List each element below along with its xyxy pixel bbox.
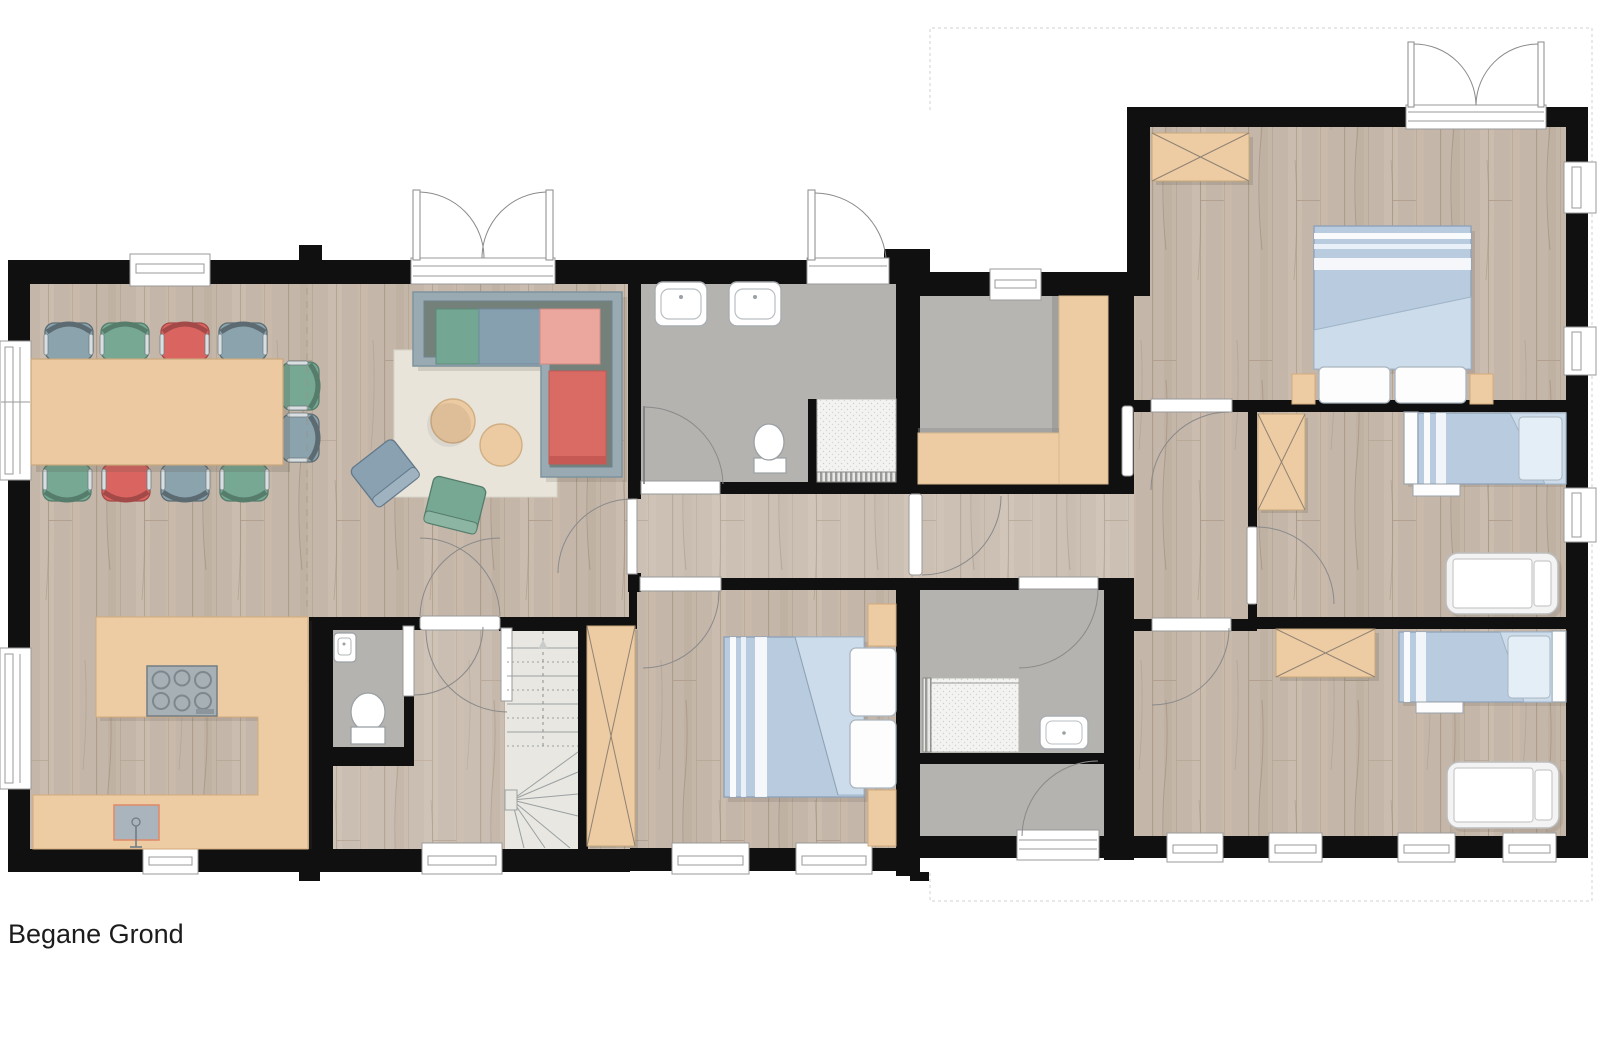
svg-text:Begane Grond: Begane Grond bbox=[8, 919, 184, 949]
